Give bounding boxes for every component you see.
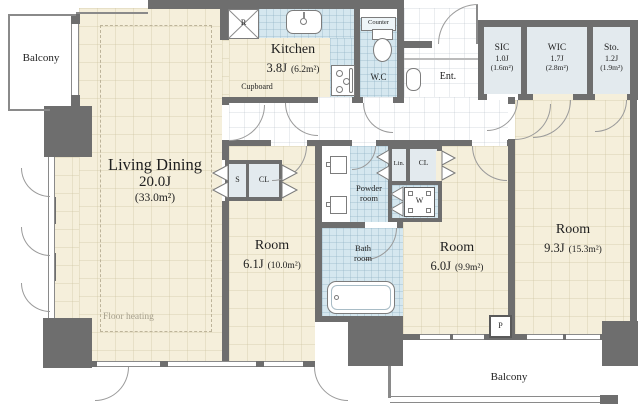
wic-name: WIC: [529, 43, 585, 54]
exterior-door-arc: [314, 367, 348, 401]
room-6-1-label: Room 6.1J (10.0m²): [227, 238, 317, 273]
wall-segment: [507, 140, 515, 146]
faucet-icon: [303, 12, 305, 19]
faucet-icon: [326, 202, 331, 207]
window-divider: [450, 334, 453, 340]
exterior-door-arc: [95, 367, 129, 401]
balcony-top-wall: [8, 109, 50, 111]
wall-segment: [222, 141, 229, 160]
balcony-railing: [390, 396, 617, 403]
bifold-door-icon: [282, 164, 299, 198]
kitchen-name: Kitchen: [243, 42, 343, 59]
room-6-0-area: (9.9m²): [455, 263, 483, 273]
room-9-3-label: Room 9.3J (15.3m²): [523, 222, 623, 257]
sic-label: SIC 1.0J (1.6m²): [480, 43, 524, 72]
wall-segment: [256, 361, 264, 367]
living-dining-size: 20.0J: [95, 174, 215, 192]
pillar: [602, 321, 638, 366]
wall-segment: [352, 97, 363, 103]
room-6-1-size: 6.1J: [243, 257, 264, 271]
room-9-3-area: (15.3m²): [569, 245, 602, 255]
ledge-line: [76, 12, 148, 14]
bifold-door-icon: [442, 150, 457, 181]
grill-icon: [349, 68, 353, 93]
casement-window-arc: [21, 168, 50, 197]
counter-label: Counter: [361, 19, 396, 27]
balcony-bottom-label: Balcony: [449, 371, 569, 384]
wall-segment: [222, 201, 229, 361]
wall-segment: [160, 361, 168, 367]
powder-line2: room: [344, 193, 394, 203]
refrigerator-label: R: [228, 18, 259, 27]
washer-corner: [408, 208, 413, 213]
sto-area: (1.9m²): [589, 64, 634, 73]
kitchen-size: 3.8J: [267, 61, 288, 75]
balcony-bottom-floor: [390, 340, 630, 396]
faucet-icon: [300, 18, 307, 25]
room-6-0-name: Room: [407, 240, 507, 257]
linen-label: Lin.: [391, 160, 407, 168]
room-6-1-area: (10.0m²): [268, 261, 301, 271]
window-divider: [563, 334, 566, 340]
sic-area: (1.6m²): [480, 64, 524, 73]
window: [71, 24, 79, 95]
cl-6-1-label: CL: [249, 175, 279, 184]
living-kitchen-opening: [222, 40, 229, 97]
toilet-bowl-icon: [373, 38, 392, 62]
sic-door-arc: [487, 100, 518, 131]
structure-block: [348, 322, 403, 366]
wall-segment: [400, 41, 432, 48]
kitchen-area: (6.2m²): [291, 65, 319, 75]
washer-corner: [426, 208, 431, 213]
living-dining-name: Living Dining: [95, 155, 215, 174]
kitchen-label: Kitchen 3.8J (6.2m²): [243, 42, 343, 77]
cl-hall-label: CL: [410, 159, 437, 168]
wall-segment: [442, 140, 472, 146]
sto-label: Sto. 1.2J (1.9m²): [589, 43, 634, 72]
casement-window-arc: [21, 283, 50, 312]
s-closet-label: S: [229, 175, 246, 184]
wall-segment: [315, 146, 322, 322]
room-9-3-name: Room: [523, 222, 623, 239]
wall-segment: [508, 139, 515, 334]
bath-room-label: Bath room: [338, 243, 388, 263]
balcony-top-label: Balcony: [10, 52, 72, 65]
washer-label: W: [404, 196, 435, 205]
room-6-0-label: Room 6.0J (9.9m²): [407, 240, 507, 275]
wall-segment: [222, 97, 229, 105]
entrance-door-leaf: [476, 5, 478, 44]
balcony-top-wall: [8, 14, 76, 16]
sic-name: SIC: [480, 43, 524, 54]
wall-segment: [403, 334, 420, 340]
wall-segment: [71, 95, 80, 111]
room-6-1-name: Room: [227, 238, 317, 255]
bifold-door-icon: [375, 149, 389, 181]
drain-icon: [334, 295, 339, 300]
pipe-space-label: P: [489, 321, 512, 330]
entrance-step: [404, 58, 478, 60]
window: [264, 361, 303, 367]
pillar: [44, 106, 92, 157]
casement-window-arc: [21, 227, 50, 256]
room-9-3-size: 9.3J: [544, 241, 565, 255]
pillar: [43, 318, 92, 368]
bath-line1: Bath: [338, 243, 388, 253]
vanity-sink-icon: [330, 156, 347, 174]
cupboard-label: Cupboard: [229, 82, 285, 91]
hand-basin-icon: [406, 68, 421, 91]
entrance-label: Ent.: [426, 71, 470, 83]
floor-plan: Balcony Living Dining 20.0J (33.0m²) Kit…: [0, 0, 640, 412]
powder-room-label: Powder room: [344, 183, 394, 203]
wic-area: (2.8m²): [529, 64, 585, 73]
wall-segment: [397, 8, 404, 100]
window: [168, 361, 256, 367]
room-6-0-size: 6.0J: [431, 259, 452, 273]
bathtub-inner: [331, 285, 391, 310]
living-dining-label: Living Dining 20.0J (33.0m²): [95, 155, 215, 206]
wc-label: W.C: [360, 72, 397, 83]
balcony-side-wall: [388, 366, 391, 398]
wall-segment: [148, 0, 404, 9]
railing-post: [600, 395, 618, 404]
wall-segment: [630, 100, 637, 321]
wall-segment: [315, 222, 365, 228]
faucet-icon: [326, 162, 331, 167]
burner-icon: [336, 86, 343, 93]
sto-name: Sto.: [589, 43, 634, 54]
wall-segment: [307, 140, 352, 146]
wall-segment: [397, 222, 403, 228]
wall-segment: [600, 334, 630, 340]
wall-segment: [393, 97, 404, 103]
floor-heating-label: Floor heating: [103, 312, 193, 323]
powder-line1: Powder: [344, 183, 394, 193]
wic-label: WIC 1.7J (2.8m²): [529, 43, 585, 72]
bath-line2: room: [338, 253, 388, 263]
living-dining-area: (33.0m²): [95, 192, 215, 206]
